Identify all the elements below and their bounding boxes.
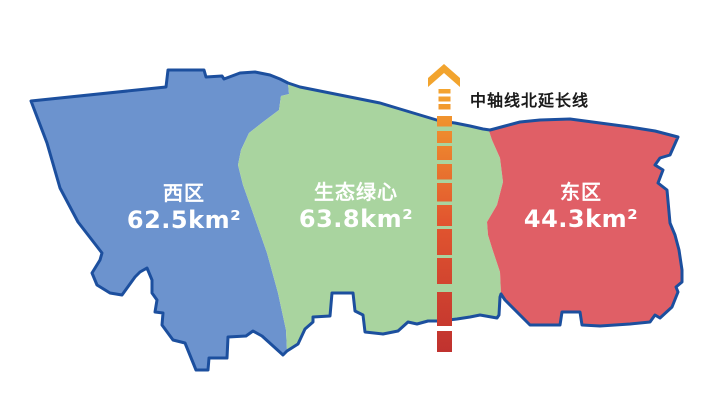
- axis-label: 中轴线北延长线: [470, 87, 589, 111]
- east-region-shape: [487, 119, 682, 326]
- axis-arrow-up-icon: [428, 64, 460, 87]
- map-canvas: 西区 62.5km² 生态绿心 63.8km² 东区 44.3km² 中轴线北延…: [0, 0, 718, 407]
- west-region-shape: [31, 70, 289, 370]
- map-svg: [0, 0, 718, 407]
